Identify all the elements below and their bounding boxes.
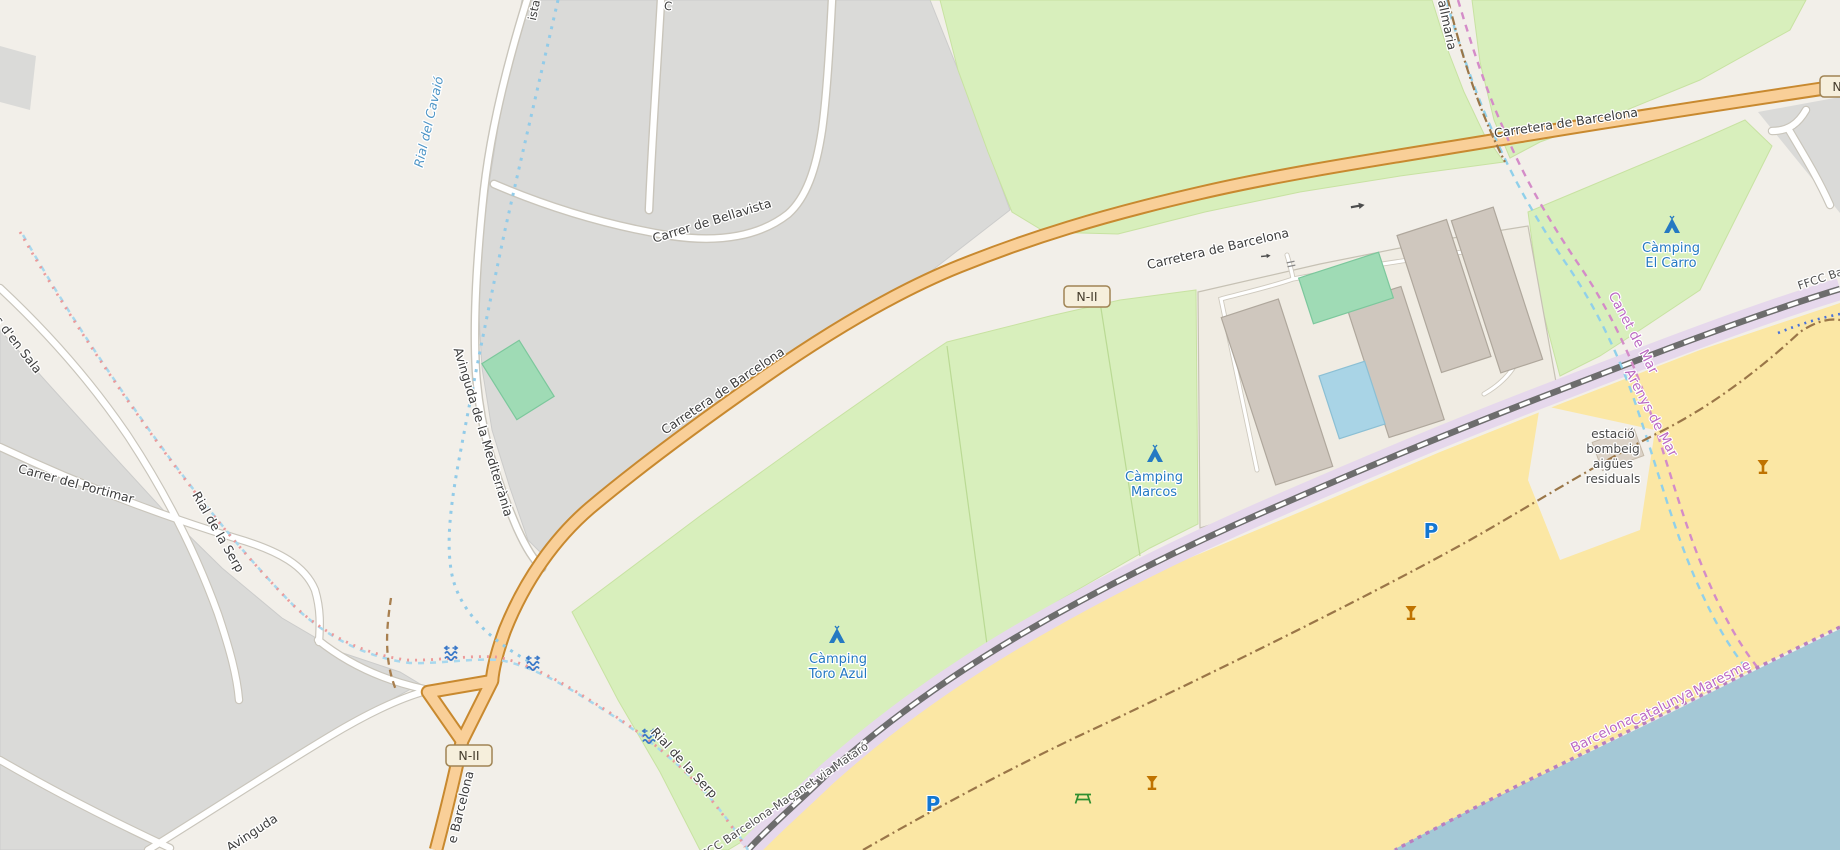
svg-text:Càmping: Càmping bbox=[1125, 470, 1183, 485]
urban-area-left-sliver bbox=[0, 46, 36, 110]
route-badge-nii-mid: N-II bbox=[1064, 286, 1110, 307]
poi-label-el-carro[interactable]: Càmping El Carro bbox=[1642, 241, 1700, 271]
parking-icon[interactable]: P bbox=[926, 792, 941, 816]
svg-text:residuals: residuals bbox=[1586, 472, 1641, 486]
route-badge-nii-edge: N-II bbox=[1820, 76, 1840, 97]
parking-icon[interactable]: P bbox=[1424, 519, 1439, 543]
map-svg: P P N-II N-II N-II Carretera de Barcelon… bbox=[0, 0, 1840, 850]
route-badge-nii-south: N-II bbox=[446, 745, 492, 766]
map-canvas[interactable]: P P N-II N-II N-II Carretera de Barcelon… bbox=[0, 0, 1840, 850]
svg-text:aigües: aigües bbox=[1593, 457, 1633, 471]
poi-label-marcos[interactable]: Càmping Marcos bbox=[1125, 470, 1183, 500]
svg-text:Marcos: Marcos bbox=[1131, 485, 1177, 500]
svg-text:Toro Azul: Toro Azul bbox=[808, 667, 867, 682]
svg-text:N-II: N-II bbox=[1076, 289, 1097, 304]
poi-label-estacio: estació bombeig aigües residuals bbox=[1586, 427, 1641, 486]
svg-text:bombeig: bombeig bbox=[1586, 442, 1639, 456]
svg-text:estació: estació bbox=[1591, 427, 1635, 441]
svg-text:El Carro: El Carro bbox=[1645, 256, 1696, 271]
svg-text:N-II: N-II bbox=[1832, 79, 1840, 94]
poi-label-toro-azul[interactable]: Càmping Toro Azul bbox=[808, 652, 867, 682]
svg-text:N-II: N-II bbox=[458, 748, 479, 763]
svg-text:Càmping: Càmping bbox=[1642, 241, 1700, 256]
svg-text:Càmping: Càmping bbox=[809, 652, 867, 667]
